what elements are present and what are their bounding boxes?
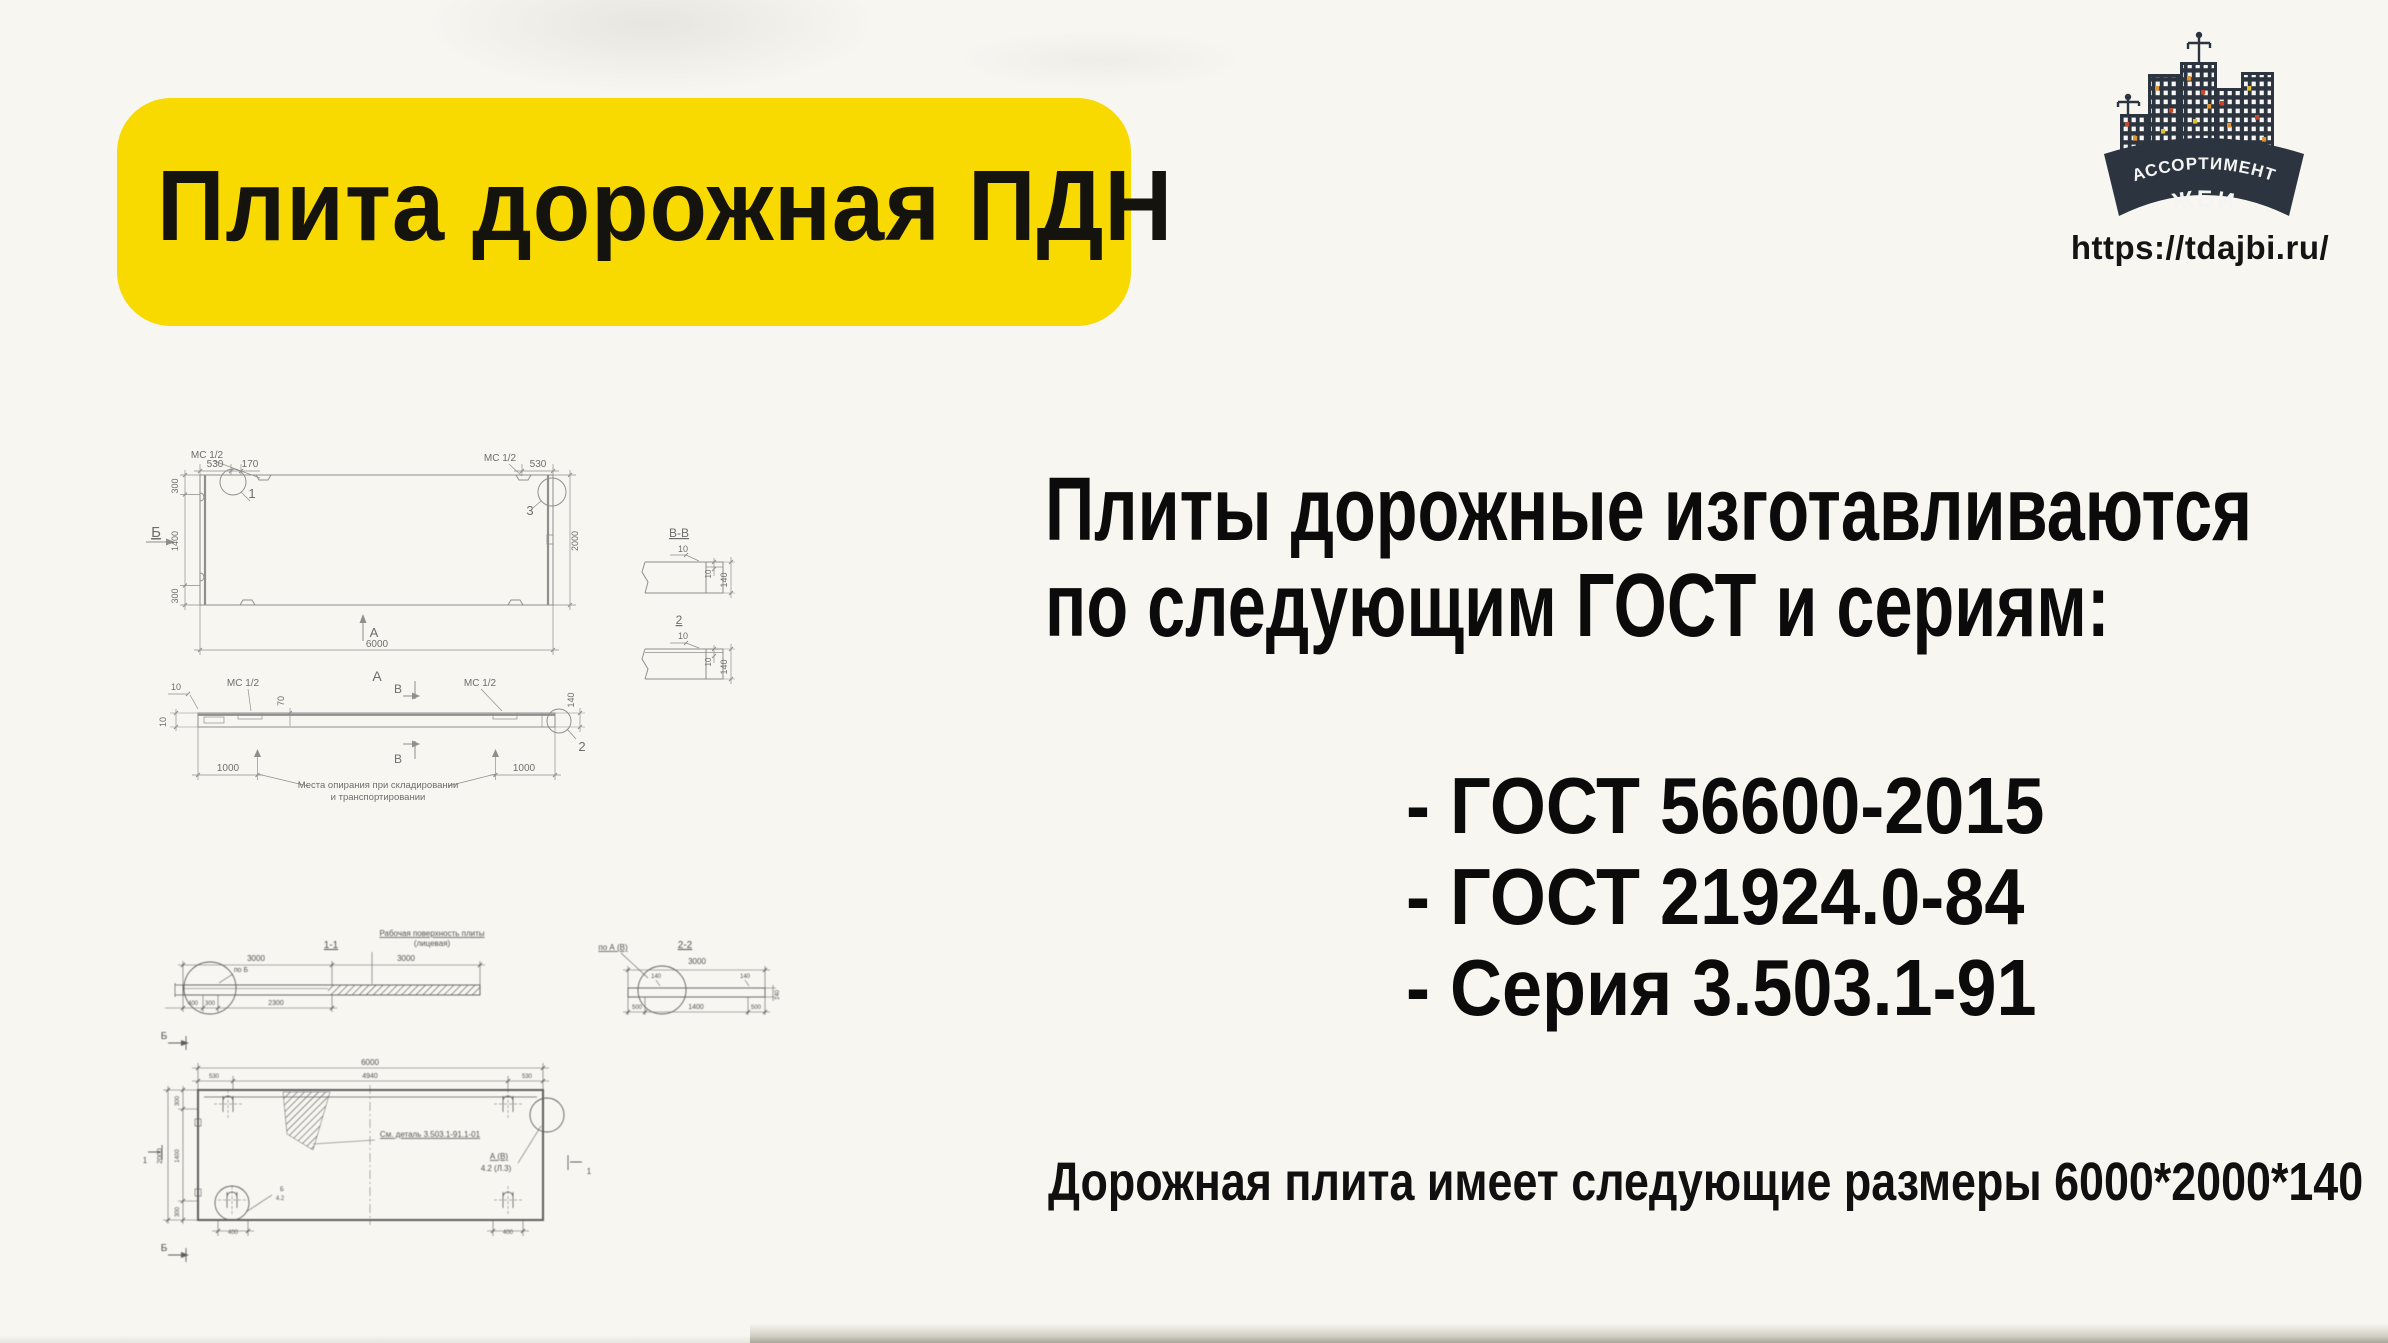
bottom-paper-edge bbox=[750, 1323, 2388, 1343]
drawing-label: 2300 bbox=[268, 1000, 284, 1007]
drawing-label: 6000 bbox=[366, 639, 389, 650]
standard-item: - Серия 3.503.1-91 bbox=[1406, 942, 2044, 1033]
drawing-label: Б bbox=[161, 1243, 168, 1254]
drawing-label: 400 bbox=[228, 1230, 239, 1236]
drawing-label: и транспортировании bbox=[331, 792, 426, 803]
drawing-label: 140 bbox=[775, 989, 781, 1000]
drawing-label: 3000 bbox=[247, 954, 265, 963]
city-skyline-icon: АССОРТИМЕНТ ЖБИ bbox=[2098, 26, 2310, 226]
intro-line1: Плиты дорожные изготавливаются bbox=[1045, 462, 2252, 558]
drawing-label: 140 bbox=[740, 974, 751, 980]
paper-smudge bbox=[950, 30, 1250, 90]
drawing-label: В bbox=[394, 682, 402, 696]
drawing-label: 10 bbox=[678, 544, 688, 554]
drawing-label: 3000 bbox=[397, 954, 415, 963]
drawing-top-labels: 530170530МС 1/2МС 1/213Б3001400300200060… bbox=[151, 450, 729, 803]
drawing-label: 10 bbox=[704, 657, 713, 666]
drawing-bottom-labels: 1-1Рабочая поверхность плиты(лицевая)300… bbox=[143, 929, 781, 1254]
drawing-label: 140 bbox=[651, 974, 662, 980]
drawing-label: 1400 bbox=[688, 1004, 704, 1011]
website-url: https://tdajbi.ru/ bbox=[2030, 229, 2370, 267]
drawing-label: по А (В) bbox=[598, 943, 628, 952]
drawing-label: Б bbox=[280, 1187, 284, 1193]
intro-text: Плиты дорожные изготавливаются по следую… bbox=[1045, 462, 2252, 654]
drawing-label: 300 bbox=[175, 1206, 181, 1217]
drawing-label: А bbox=[370, 625, 379, 640]
drawing-label: 10 bbox=[158, 717, 168, 727]
drawing-label: 300 bbox=[170, 478, 180, 493]
drawing-label: 170 bbox=[242, 459, 259, 470]
drawing-label: 1400 bbox=[175, 1149, 181, 1163]
drawing-label: Рабочая поверхность плиты bbox=[379, 929, 484, 938]
dimensions-note: Дорожная плита имеет следующие размеры 6… bbox=[1048, 1152, 2363, 1212]
drawing-label: 140 bbox=[719, 572, 729, 587]
drawing-label: МС 1/2 bbox=[227, 678, 260, 689]
intro-line2: по следующим ГОСТ и сериям: bbox=[1045, 558, 2252, 654]
drawing-label: Б bbox=[151, 524, 161, 541]
drawing-label: 1000 bbox=[513, 763, 536, 774]
standard-item: - ГОСТ 56600-2015 bbox=[1406, 760, 2044, 851]
drawing-label: 530 bbox=[522, 1074, 533, 1080]
drawing-label: 400 bbox=[503, 1230, 514, 1236]
drawing-label: 530 bbox=[209, 1074, 220, 1080]
drawing-label: 10 bbox=[171, 682, 181, 692]
drawing-label: 10 bbox=[678, 631, 688, 641]
slide: { "page": { "background": "#f8f6f1" }, "… bbox=[0, 0, 2388, 1343]
standard-item: - ГОСТ 21924.0-84 bbox=[1406, 851, 2044, 942]
drawing-label: 2-2 bbox=[678, 940, 693, 951]
drawing-label: 400 bbox=[188, 1001, 199, 1007]
drawing-label: 4940 bbox=[362, 1073, 378, 1080]
drawing-label: МС 1/2 bbox=[464, 678, 497, 689]
drawing-label: Б bbox=[161, 1031, 168, 1042]
drawing-label: 500 bbox=[751, 1005, 762, 1011]
drawing-label: А bbox=[372, 668, 382, 684]
drawing-label: 4.2 (Л.3) bbox=[481, 1164, 512, 1173]
drawing-label: (лицевая) bbox=[414, 939, 451, 948]
drawing-label: 10 bbox=[704, 569, 713, 578]
drawing-label: 1 bbox=[248, 486, 255, 501]
drawing-label: 530 bbox=[530, 459, 547, 470]
drawing-label: МС 1/2 bbox=[484, 453, 517, 464]
drawing-label: 1000 bbox=[217, 763, 240, 774]
drawing-label: 3000 bbox=[688, 957, 706, 966]
drawing-label: 6000 bbox=[361, 1058, 379, 1067]
drawing-label: 2 bbox=[676, 613, 683, 627]
paper-smudge bbox=[420, 0, 880, 95]
logo-text-line2: ЖБИ bbox=[2169, 186, 2238, 216]
drawing-label: 1-1 bbox=[324, 940, 339, 951]
drawing-label: 1 bbox=[143, 1156, 148, 1165]
technical-drawing-sections: 1-1Рабочая поверхность плиты(лицевая)300… bbox=[100, 900, 790, 1330]
drawing-label: 2000 bbox=[157, 1148, 164, 1164]
company-logo: АССОРТИМЕНТ ЖБИ bbox=[2098, 26, 2310, 226]
drawing-label: 300 bbox=[175, 1095, 181, 1106]
drawing-label: В-В bbox=[669, 526, 689, 540]
technical-drawing-plan-side: 530170530МС 1/2МС 1/213Б3001400300200060… bbox=[110, 425, 790, 835]
drawing-label: А (В) bbox=[490, 1152, 509, 1161]
drawing-label: 1400 bbox=[170, 531, 180, 551]
drawing-label: В bbox=[394, 752, 402, 766]
drawing-label: 300 bbox=[205, 1001, 216, 1007]
title-banner: Плита дорожная ПДН bbox=[117, 98, 1131, 326]
drawing-label: 4.2 bbox=[276, 1196, 285, 1202]
drawing-label: 140 bbox=[566, 692, 576, 707]
drawing-label: 2 bbox=[578, 739, 585, 754]
drawing-label: 140 bbox=[719, 659, 729, 674]
drawing-label: Места опирания при складировании bbox=[298, 780, 459, 791]
drawing-label: 1 bbox=[587, 1167, 592, 1176]
drawing-label: по Б bbox=[234, 967, 249, 974]
drawing-label: 500 bbox=[632, 1005, 643, 1011]
standards-list: - ГОСТ 56600-2015 - ГОСТ 21924.0-84 - Се… bbox=[1406, 760, 2044, 1033]
drawing-label: 300 bbox=[170, 588, 180, 603]
page-title: Плита дорожная ПДН bbox=[157, 156, 1173, 256]
drawing-label: 3 bbox=[526, 503, 533, 518]
drawing-label: 2000 bbox=[570, 531, 580, 551]
svg-text:ЖБИ: ЖБИ bbox=[2169, 186, 2238, 216]
drawing-label: МС 1/2 bbox=[191, 450, 224, 461]
drawing-label: 70 bbox=[276, 696, 286, 706]
bottom-paper-edge-left bbox=[0, 1335, 760, 1343]
drawing-label: См. деталь 3.503.1-91.1-01 bbox=[380, 1130, 481, 1139]
